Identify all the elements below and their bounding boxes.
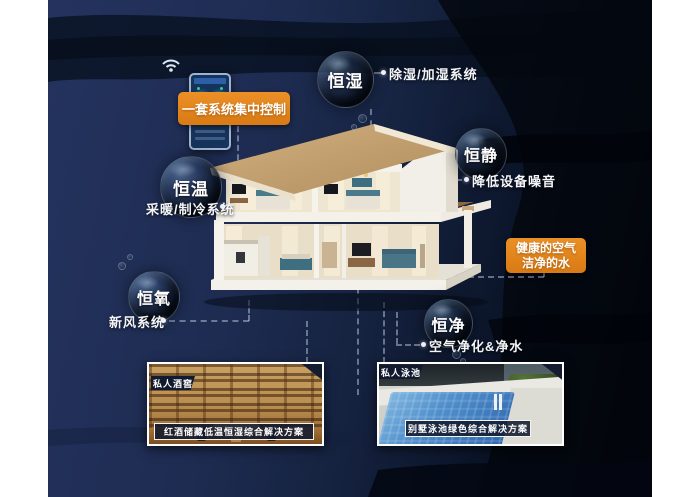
poster-stage: 一套系统集中控制 恒湿 除湿/加湿系统 恒静 降低设备噪音 恒温 采暖/制冷系统… xyxy=(0,0,700,497)
bubble-oxygen-label: 恒氧 xyxy=(137,285,171,309)
wine-card-caption: 红酒储藏低温恒湿综合解决方案 xyxy=(154,423,314,440)
bullet-temperature xyxy=(220,204,225,209)
controller-led-left xyxy=(197,87,200,90)
controller-label-box: 一套系统集中控制 xyxy=(178,92,290,125)
controller-label: 一套系统集中控制 xyxy=(182,99,286,118)
controller-led-right xyxy=(220,87,223,90)
connector-wine-card xyxy=(306,321,308,363)
house-cutaway-illustration xyxy=(196,112,496,312)
pool-card-badge: 私人泳池 xyxy=(379,365,423,379)
bubble-quiet-label: 恒静 xyxy=(464,142,498,166)
pool-ladder xyxy=(494,394,497,410)
highlight-box: 健康的空气 洁净的水 xyxy=(506,238,586,273)
bullet-quiet xyxy=(464,177,469,182)
mini-bubble xyxy=(351,124,357,130)
bubble-humidity-label: 恒湿 xyxy=(328,67,364,92)
bubble-humidity: 恒湿 xyxy=(317,51,374,108)
wine-card-badge: 私人酒窖 xyxy=(151,376,195,390)
poster-canvas: 一套系统集中控制 恒湿 除湿/加湿系统 恒静 降低设备噪音 恒温 采暖/制冷系统… xyxy=(48,0,652,497)
bubble-temperature-label: 恒温 xyxy=(173,175,209,200)
wifi-icon xyxy=(160,54,182,72)
bullet-oxygen xyxy=(161,318,166,323)
highlight-line1: 健康的空气 xyxy=(516,241,576,256)
connector-purity xyxy=(396,344,420,346)
note-purity: 空气净化&净水 xyxy=(429,336,523,355)
bubble-purity-label: 恒净 xyxy=(431,312,465,336)
note-oxygen: 新风系统 xyxy=(109,312,165,331)
pool-card-caption: 别墅泳池绿色综合解决方案 xyxy=(405,420,531,437)
note-humidity: 除湿/加湿系统 xyxy=(389,64,478,83)
card-swimming-pool: 私人泳池 别墅泳池绿色综合解决方案 xyxy=(377,362,564,446)
bullet-humidity xyxy=(381,70,386,75)
connector-purity-up xyxy=(396,312,398,344)
mini-bubble xyxy=(358,114,367,123)
controller-row xyxy=(195,130,225,133)
card-wine-cellar: 私人酒窖 红酒储藏低温恒湿综合解决方案 xyxy=(147,362,324,446)
note-quiet: 降低设备噪音 xyxy=(472,171,556,190)
mini-bubble xyxy=(127,254,133,260)
connector-oxygen xyxy=(169,320,249,322)
bullet-purity xyxy=(421,342,426,347)
controller-row xyxy=(195,137,225,140)
highlight-line2: 洁净的水 xyxy=(522,256,570,271)
controller-screen-header xyxy=(194,78,226,84)
mini-bubble xyxy=(118,262,126,270)
